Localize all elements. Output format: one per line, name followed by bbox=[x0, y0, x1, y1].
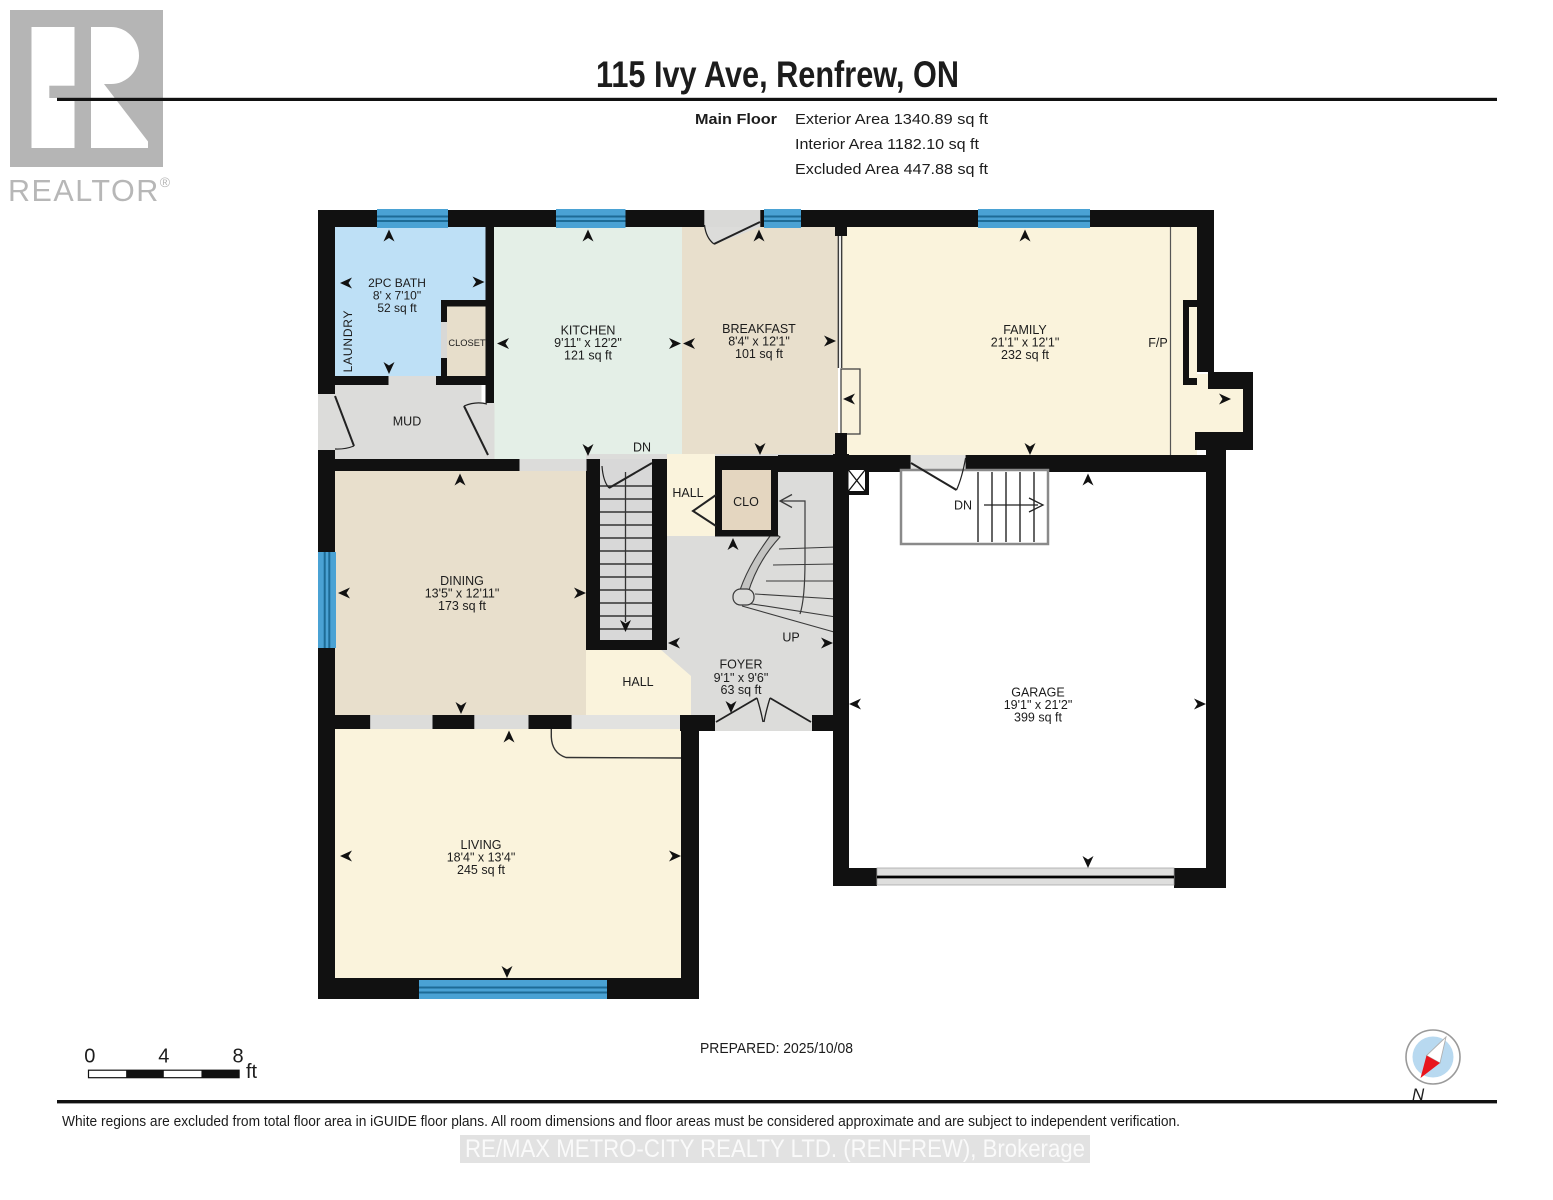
svg-text:Exterior Area 1340.89 sq ft: Exterior Area 1340.89 sq ft bbox=[795, 111, 989, 128]
svg-text:FOYER: FOYER bbox=[719, 658, 762, 672]
svg-text:4: 4 bbox=[158, 1046, 169, 1068]
svg-text:63 sq ft: 63 sq ft bbox=[721, 683, 763, 697]
svg-text:Main Floor: Main Floor bbox=[695, 111, 777, 128]
svg-text:PREPARED: 2025/10/08: PREPARED: 2025/10/08 bbox=[700, 1040, 853, 1057]
svg-text:DN: DN bbox=[954, 499, 972, 513]
svg-text:0: 0 bbox=[84, 1046, 95, 1068]
svg-text:101 sq ft: 101 sq ft bbox=[735, 347, 783, 361]
svg-text:245 sq ft: 245 sq ft bbox=[457, 863, 505, 877]
svg-text:121 sq ft: 121 sq ft bbox=[564, 349, 612, 363]
svg-text:LAUNDRY: LAUNDRY bbox=[341, 310, 355, 373]
svg-text:CLO: CLO bbox=[733, 495, 759, 509]
svg-text:Interior Area 1182.10 sq ft: Interior Area 1182.10 sq ft bbox=[795, 136, 980, 153]
svg-text:HALL: HALL bbox=[622, 675, 653, 689]
svg-text:115 Ivy Ave, Renfrew, ON: 115 Ivy Ave, Renfrew, ON bbox=[596, 54, 959, 95]
svg-text:CLOSET: CLOSET bbox=[448, 338, 486, 348]
svg-text:52 sq ft: 52 sq ft bbox=[377, 301, 417, 315]
svg-text:White regions are excluded fro: White regions are excluded from total fl… bbox=[62, 1114, 1180, 1130]
svg-text:RE/MAX METRO-CITY REALTY LTD.: RE/MAX METRO-CITY REALTY LTD. (RENFREW),… bbox=[465, 1135, 1085, 1163]
svg-text:173 sq ft: 173 sq ft bbox=[438, 599, 486, 613]
svg-text:F/P: F/P bbox=[1148, 336, 1167, 350]
svg-text:DN: DN bbox=[633, 441, 651, 455]
svg-text:ft: ft bbox=[246, 1061, 258, 1083]
svg-text:HALL: HALL bbox=[672, 486, 703, 500]
svg-text:232 sq ft: 232 sq ft bbox=[1001, 348, 1049, 362]
svg-text:REALTOR®: REALTOR® bbox=[8, 174, 172, 208]
svg-text:Excluded Area 447.88 sq ft: Excluded Area 447.88 sq ft bbox=[795, 161, 989, 178]
svg-text:399 sq ft: 399 sq ft bbox=[1014, 711, 1062, 725]
svg-text:8: 8 bbox=[232, 1046, 243, 1068]
svg-text:UP: UP bbox=[782, 631, 799, 645]
svg-text:MUD: MUD bbox=[393, 415, 421, 429]
